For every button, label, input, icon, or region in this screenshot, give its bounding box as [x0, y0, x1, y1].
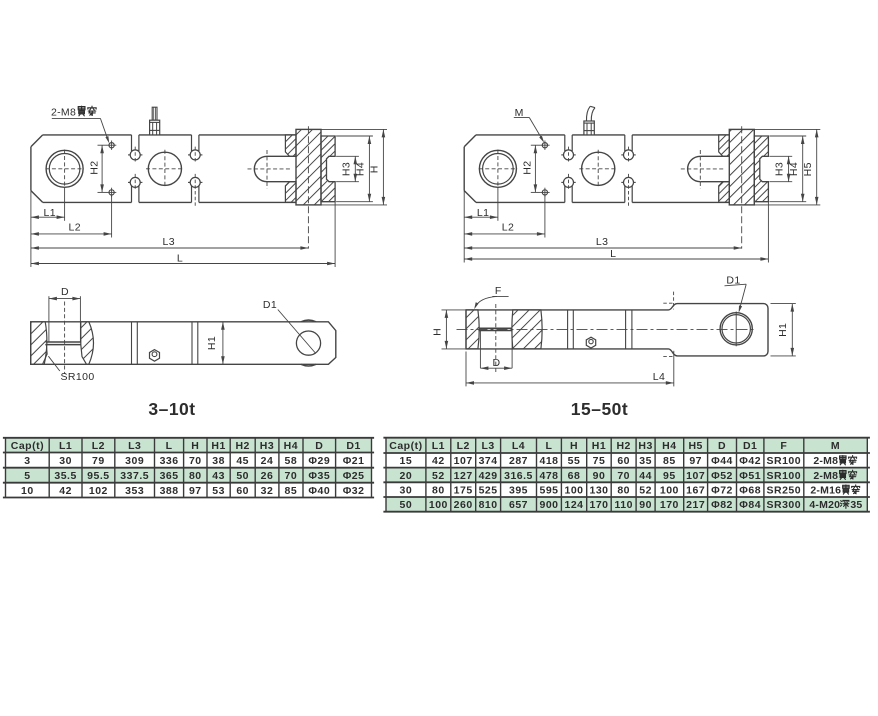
svg-text:10: 10: [21, 485, 34, 497]
svg-text:3: 3: [24, 455, 30, 467]
svg-text:2-M8: 2-M8: [51, 106, 76, 118]
svg-text:2-M16: 2-M16: [810, 485, 841, 497]
svg-text:80: 80: [432, 485, 445, 497]
svg-text:24: 24: [261, 455, 274, 467]
svg-text:SR100: SR100: [766, 470, 801, 482]
svg-text:D1: D1: [346, 440, 360, 452]
svg-text:Φ84: Φ84: [739, 499, 761, 511]
svg-text:SR300: SR300: [766, 499, 801, 511]
svg-text:Φ82: Φ82: [711, 499, 733, 511]
svg-text:75: 75: [593, 455, 606, 467]
svg-text:L: L: [610, 248, 616, 260]
svg-text:H3: H3: [340, 162, 352, 176]
svg-text:97: 97: [189, 485, 202, 497]
svg-text:30: 30: [400, 485, 413, 497]
svg-text:D: D: [315, 440, 323, 452]
svg-text:H3: H3: [638, 440, 652, 452]
svg-text:657: 657: [509, 499, 528, 511]
svg-text:26: 26: [261, 470, 274, 482]
svg-text:Φ42: Φ42: [739, 455, 761, 467]
svg-text:Φ25: Φ25: [343, 470, 365, 482]
svg-text:5: 5: [24, 470, 30, 482]
svg-text:H4: H4: [662, 440, 676, 452]
svg-text:L2: L2: [68, 222, 80, 234]
svg-text:H3: H3: [260, 440, 274, 452]
svg-text:35: 35: [639, 455, 652, 467]
svg-text:H2: H2: [522, 160, 534, 174]
svg-text:20: 20: [400, 470, 413, 482]
svg-text:H1: H1: [206, 336, 218, 350]
svg-text:2-M8: 2-M8: [813, 470, 838, 482]
svg-text:2-M8: 2-M8: [813, 455, 838, 467]
svg-text:70: 70: [285, 470, 298, 482]
svg-text:97: 97: [689, 455, 702, 467]
svg-text:80: 80: [189, 470, 202, 482]
svg-text:170: 170: [660, 499, 679, 511]
svg-text:Φ51: Φ51: [739, 470, 761, 482]
svg-text:418: 418: [539, 455, 558, 467]
svg-text:595: 595: [539, 485, 558, 497]
svg-text:H1: H1: [211, 440, 225, 452]
svg-text:H: H: [570, 440, 578, 452]
svg-text:H3: H3: [774, 162, 786, 176]
svg-text:D: D: [493, 357, 501, 369]
svg-text:L4: L4: [653, 371, 665, 383]
svg-text:395: 395: [509, 485, 528, 497]
svg-text:45: 45: [236, 455, 249, 467]
svg-text:58: 58: [285, 455, 298, 467]
svg-text:Φ32: Φ32: [343, 485, 365, 497]
svg-text:100: 100: [564, 485, 583, 497]
svg-text:D1: D1: [263, 299, 277, 311]
svg-text:Φ29: Φ29: [308, 455, 330, 467]
svg-text:L1: L1: [477, 207, 489, 219]
svg-text:70: 70: [617, 470, 630, 482]
svg-text:95: 95: [663, 470, 676, 482]
svg-text:30: 30: [59, 455, 72, 467]
svg-text:85: 85: [663, 455, 676, 467]
svg-text:L: L: [177, 253, 183, 265]
svg-text:F: F: [495, 285, 502, 297]
svg-text:L2: L2: [457, 440, 470, 452]
svg-text:H4: H4: [284, 440, 298, 452]
svg-text:H1: H1: [777, 323, 789, 337]
svg-text:38: 38: [212, 455, 225, 467]
svg-text:336: 336: [160, 455, 179, 467]
svg-text:15–50t: 15–50t: [571, 399, 629, 419]
svg-text:L2: L2: [92, 440, 105, 452]
svg-text:L2: L2: [502, 222, 514, 234]
svg-text:Φ68: Φ68: [739, 485, 761, 497]
svg-text:3–10t: 3–10t: [148, 399, 195, 419]
svg-text:L3: L3: [163, 236, 175, 248]
svg-text:175: 175: [454, 485, 473, 497]
svg-text:79: 79: [92, 455, 105, 467]
svg-text:52: 52: [432, 470, 445, 482]
svg-text:35: 35: [850, 499, 862, 511]
svg-text:H: H: [191, 440, 199, 452]
svg-text:H4: H4: [355, 162, 367, 176]
svg-text:L3: L3: [596, 236, 608, 248]
svg-text:110: 110: [614, 499, 632, 511]
svg-text:127: 127: [454, 470, 473, 482]
svg-text:L1: L1: [44, 207, 56, 219]
svg-text:217: 217: [686, 499, 705, 511]
svg-text:100: 100: [660, 485, 679, 497]
svg-text:107: 107: [686, 470, 705, 482]
svg-text:H5: H5: [688, 440, 702, 452]
svg-text:810: 810: [479, 499, 498, 511]
svg-text:H2: H2: [235, 440, 249, 452]
svg-text:L: L: [546, 440, 553, 452]
svg-text:D: D: [61, 286, 69, 298]
svg-text:90: 90: [593, 470, 606, 482]
svg-text:80: 80: [617, 485, 630, 497]
svg-text:D: D: [718, 440, 726, 452]
svg-text:353: 353: [125, 485, 144, 497]
svg-text:478: 478: [539, 470, 558, 482]
svg-text:15: 15: [400, 455, 413, 467]
svg-text:70: 70: [189, 455, 202, 467]
svg-text:374: 374: [479, 455, 498, 467]
svg-text:35.5: 35.5: [54, 470, 76, 482]
svg-text:124: 124: [564, 499, 583, 511]
svg-text:L1: L1: [59, 440, 72, 452]
svg-text:60: 60: [236, 485, 249, 497]
svg-text:Φ21: Φ21: [343, 455, 365, 467]
svg-text:337.5: 337.5: [120, 470, 149, 482]
svg-text:170: 170: [589, 499, 608, 511]
svg-text:H2: H2: [88, 160, 100, 174]
svg-text:Cap(t): Cap(t): [389, 440, 422, 452]
svg-text:SR250: SR250: [766, 485, 801, 497]
svg-text:42: 42: [59, 485, 72, 497]
svg-text:SR100: SR100: [61, 371, 95, 383]
svg-text:SR100: SR100: [766, 455, 801, 467]
svg-text:M: M: [831, 440, 840, 452]
svg-text:167: 167: [686, 485, 705, 497]
svg-text:F: F: [780, 440, 787, 452]
svg-text:42: 42: [432, 455, 445, 467]
svg-text:Cap(t): Cap(t): [11, 440, 44, 452]
svg-text:L3: L3: [128, 440, 141, 452]
svg-text:287: 287: [509, 455, 528, 467]
svg-text:L4: L4: [512, 440, 525, 452]
svg-text:60: 60: [617, 455, 630, 467]
svg-text:4-M20: 4-M20: [809, 499, 840, 511]
svg-text:Φ72: Φ72: [711, 485, 733, 497]
svg-text:L: L: [166, 440, 173, 452]
svg-text:95.5: 95.5: [87, 470, 109, 482]
svg-text:53: 53: [212, 485, 225, 497]
svg-text:102: 102: [89, 485, 108, 497]
svg-text:H5: H5: [802, 162, 814, 176]
svg-text:68: 68: [568, 470, 581, 482]
svg-text:Φ40: Φ40: [308, 485, 330, 497]
svg-text:90: 90: [639, 499, 652, 511]
svg-text:H: H: [369, 165, 381, 173]
svg-text:55: 55: [568, 455, 581, 467]
svg-text:M: M: [515, 107, 524, 119]
svg-text:85: 85: [285, 485, 298, 497]
svg-text:50: 50: [236, 470, 249, 482]
svg-text:260: 260: [454, 499, 473, 511]
svg-text:H1: H1: [592, 440, 606, 452]
svg-text:H4: H4: [788, 162, 800, 176]
svg-text:52: 52: [639, 485, 652, 497]
svg-text:525: 525: [479, 485, 498, 497]
svg-text:316.5: 316.5: [504, 470, 533, 482]
svg-text:50: 50: [400, 499, 413, 511]
svg-text:32: 32: [261, 485, 274, 497]
svg-text:900: 900: [539, 499, 558, 511]
svg-text:44: 44: [639, 470, 652, 482]
svg-text:H: H: [431, 328, 443, 336]
svg-text:130: 130: [589, 485, 608, 497]
svg-text:L3: L3: [481, 440, 494, 452]
svg-text:388: 388: [160, 485, 179, 497]
svg-text:Φ35: Φ35: [308, 470, 330, 482]
svg-text:43: 43: [212, 470, 225, 482]
svg-text:D1: D1: [743, 440, 757, 452]
svg-text:365: 365: [160, 470, 179, 482]
svg-text:L1: L1: [432, 440, 445, 452]
svg-text:100: 100: [429, 499, 448, 511]
svg-text:H2: H2: [616, 440, 630, 452]
svg-text:107: 107: [454, 455, 473, 467]
svg-text:Φ52: Φ52: [711, 470, 733, 482]
svg-text:309: 309: [125, 455, 144, 467]
svg-text:Φ44: Φ44: [711, 455, 733, 467]
svg-text:429: 429: [479, 470, 498, 482]
